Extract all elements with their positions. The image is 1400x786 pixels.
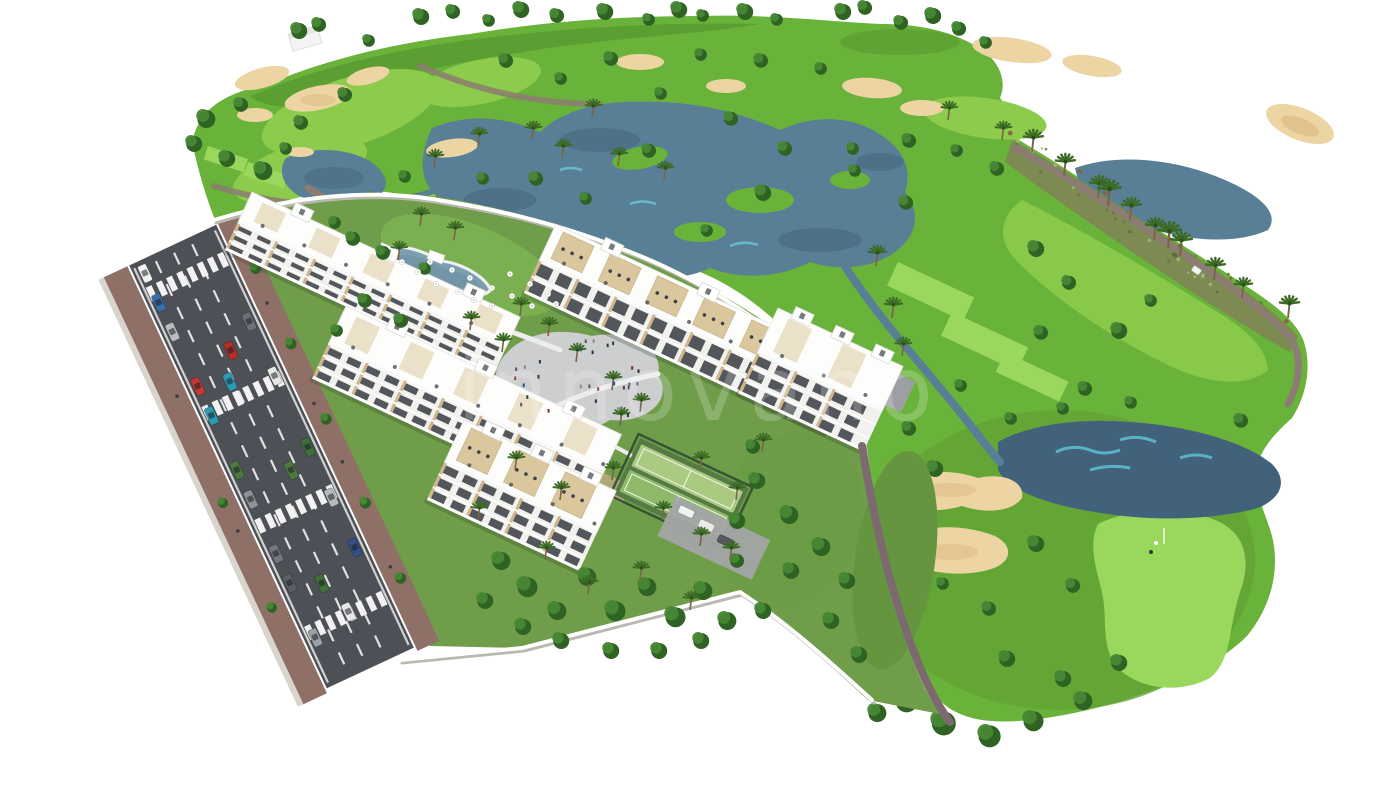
- parasol: [553, 301, 558, 306]
- scrub-dot: [1167, 259, 1171, 263]
- scrub-dot: [1216, 291, 1219, 294]
- parasol: [427, 259, 432, 264]
- pedestrian: [389, 565, 393, 569]
- parasol: [489, 303, 494, 308]
- scrub-dot: [1187, 272, 1189, 274]
- parasol: [455, 289, 460, 294]
- tree: [650, 642, 667, 659]
- property-aerial-render: innovano: [0, 0, 1400, 786]
- tree: [834, 3, 851, 20]
- scrub-dot: [1227, 273, 1230, 276]
- tree: [596, 3, 613, 20]
- scrub-dot: [1008, 131, 1013, 136]
- scrub-dot: [1114, 217, 1117, 220]
- parasol: [471, 297, 476, 302]
- pedestrian: [236, 529, 240, 533]
- tree: [924, 7, 941, 24]
- watermark-text: innovano: [457, 338, 942, 441]
- parasol: [467, 275, 472, 280]
- scrub-dot: [1209, 283, 1212, 286]
- tree: [482, 14, 495, 27]
- parasol: [529, 303, 534, 308]
- parasol: [415, 269, 420, 274]
- tree: [717, 611, 736, 630]
- scrub-dot: [1039, 170, 1043, 174]
- pedestrian: [175, 394, 179, 398]
- pedestrian: [312, 402, 316, 406]
- scrub-dot: [1176, 257, 1180, 261]
- tree: [692, 632, 709, 649]
- tree: [445, 4, 460, 19]
- scrub-dot: [1259, 301, 1262, 304]
- scrub-dot: [1016, 139, 1020, 143]
- scrub-dot: [1193, 275, 1196, 278]
- parasol: [509, 293, 514, 298]
- parasol: [527, 281, 532, 286]
- scrub-dot: [1284, 319, 1289, 324]
- scrub-dot: [1045, 148, 1048, 151]
- tree: [951, 21, 966, 36]
- tree: [857, 0, 872, 15]
- tree: [867, 703, 886, 722]
- pedestrian: [341, 460, 345, 464]
- scrub-dot: [1129, 231, 1132, 234]
- scrub-dot: [1194, 255, 1197, 258]
- parasol: [399, 259, 404, 264]
- scrub-dot: [1201, 273, 1206, 278]
- scrub-dot: [1148, 239, 1151, 242]
- parasol: [449, 267, 454, 272]
- pond-shading: [304, 167, 364, 189]
- scrub-dot: [1205, 275, 1207, 277]
- tree: [977, 724, 1000, 747]
- tree: [602, 642, 619, 659]
- scrub-dot: [1041, 147, 1043, 149]
- scrub-dot: [1077, 194, 1080, 197]
- scrub-dot: [1078, 169, 1082, 173]
- tree: [512, 1, 529, 18]
- scrub-dot: [1103, 191, 1107, 195]
- scrub-dot: [1123, 220, 1126, 223]
- scrub-dot: [1172, 253, 1176, 257]
- tree: [362, 34, 375, 47]
- parasol: [507, 271, 512, 276]
- scrub-dot: [1105, 209, 1108, 212]
- parasol: [489, 285, 494, 290]
- pedestrian: [265, 301, 269, 305]
- tree: [670, 1, 687, 18]
- scrub-dot: [1229, 277, 1232, 280]
- parasol: [545, 291, 550, 296]
- tree: [549, 8, 564, 23]
- parasol: [433, 281, 438, 286]
- rough-patch: [840, 29, 960, 55]
- tree: [412, 8, 429, 25]
